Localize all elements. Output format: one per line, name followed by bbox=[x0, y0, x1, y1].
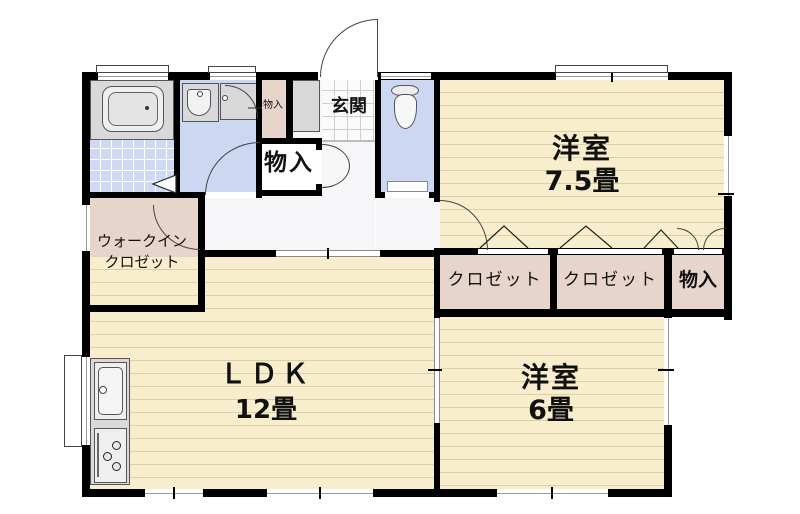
label-ldk-size: 12畳 bbox=[166, 397, 366, 424]
label-storage-hall: 物入 bbox=[256, 151, 322, 175]
label-wic-line1: ウォークイン bbox=[86, 234, 198, 250]
label-entrance: 玄関 bbox=[322, 98, 376, 117]
label-western6-size: 6畳 bbox=[451, 397, 651, 425]
bifold-door-icon bbox=[560, 226, 612, 248]
bifold-door-icon bbox=[644, 230, 678, 248]
label-storage-small: 物入 bbox=[256, 101, 290, 112]
label-western6-name: 洋室 bbox=[451, 363, 651, 392]
label-wic-line2: クロゼット bbox=[86, 255, 198, 271]
floor-plan: 玄関 物入 物入 洋室 7.5畳 ウォークイン クロゼット クロゼット クロゼッ… bbox=[0, 0, 800, 514]
label-western75-size: 7.5畳 bbox=[482, 168, 682, 196]
label-storage-east: 物入 bbox=[672, 271, 724, 291]
label-ldk-name: ＬＤＫ bbox=[166, 361, 366, 389]
label-western75-name: 洋室 bbox=[482, 134, 682, 163]
bath-folding-door-icon bbox=[153, 175, 176, 193]
label-closet-b: クロゼット bbox=[557, 272, 664, 290]
bifold-door-icon bbox=[480, 226, 528, 248]
label-closet-a: クロゼット bbox=[440, 272, 550, 290]
